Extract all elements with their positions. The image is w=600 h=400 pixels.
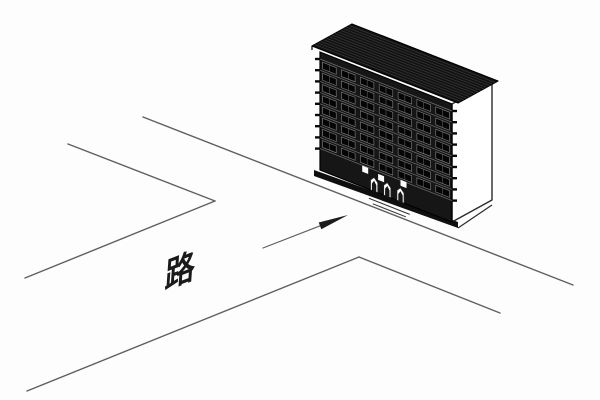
arrow-head xyxy=(319,215,348,229)
road-edge-near-edge-southeast xyxy=(359,257,500,313)
road-edge-near-edge-northwest xyxy=(68,144,215,201)
building xyxy=(312,24,498,228)
arrow-shaft xyxy=(263,224,326,248)
entrance-arrow xyxy=(263,215,348,248)
road-label: 路 xyxy=(164,245,197,297)
site-plan-canvas: 路 xyxy=(0,0,600,400)
axonometric-site-diagram: 路 xyxy=(0,0,600,400)
